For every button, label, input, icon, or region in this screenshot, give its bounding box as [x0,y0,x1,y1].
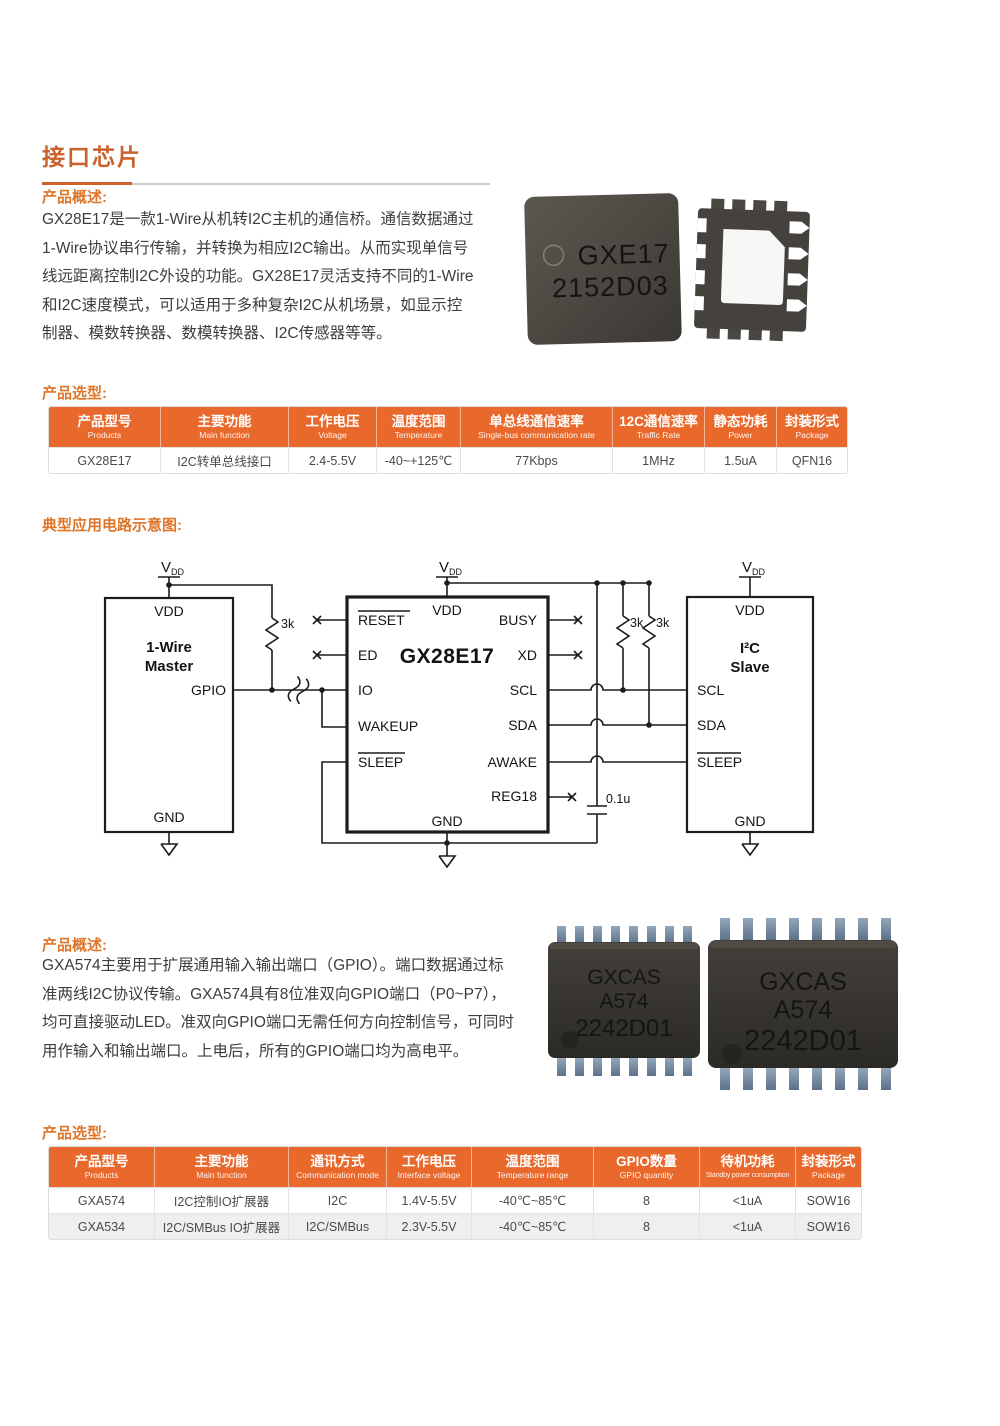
no-connect-ed [313,651,347,659]
table-header-row: 产品型号Products 主要功能Main function 工作电压Volta… [49,407,847,447]
chip-marking-line1: GXCAS [587,966,661,989]
overview-label-1: 产品概述: [42,186,107,207]
pin-scl: SCL [697,682,724,698]
table-cell: I2C/SMBus IO扩展器 [155,1213,289,1239]
table-cell: 8 [594,1187,700,1213]
header-cell: 封装形式Package [777,407,847,447]
block-1wire-master [105,598,233,832]
pin-io: IO [358,682,373,698]
resistor-value: 3k [281,617,295,631]
header-cell: 产品型号Products [49,1147,155,1187]
no-connect-reset [313,616,347,624]
header-cell: 主要功能Main function [161,407,289,447]
selection-label-2: 产品选型: [42,1122,107,1143]
pin-sleep: SLEEP [697,754,742,770]
pin-sleep: SLEEP [358,754,403,770]
capacitor [587,583,607,843]
header-cell: 单总线通信速率Single-bus communication rate [461,407,613,447]
pin1-indicator [722,1044,742,1064]
pin-reg18: REG18 [491,788,537,804]
table-cell: 1MHz [613,447,705,473]
header-cell: 通讯方式Communication mode [289,1147,387,1187]
header-cell: 静态功耗Power [705,407,777,447]
chip-marking-line3: 2242D01 [744,1025,862,1057]
table-row: GXA574 I2C控制IO扩展器 I2C 1.4V-5.5V -40℃~85℃… [49,1187,861,1213]
table-cell: <1uA [700,1213,796,1239]
overview-text-1: GX28E17是一款1-Wire从机转I2C主机的通信桥。通信数据通过 1-Wi… [42,206,522,349]
pin-vdd: VDD [432,602,462,618]
chip-marking-line3: 2242D01 [575,1015,672,1042]
pin-gpio: GPIO [191,682,226,698]
page-title: 接口芯片 [42,138,142,172]
table-header-row: 产品型号Products 主要功能Main function 通讯方式Commu… [49,1147,861,1187]
table-cell: -40℃~85℃ [472,1213,594,1239]
application-circuit-diagram: VDD VDD VDD VDD 1-Wire Master GPIO GND V… [0,540,1000,876]
pin-ed: ED [358,647,377,663]
resistor-scl-pullup [617,616,629,648]
resistor-sda-pullup [643,616,655,648]
wire-awake-sleep [548,756,687,762]
block-title: 1-Wire [146,639,192,656]
header-cell: 12C通信速率Traffic Rate [613,407,705,447]
table-cell: I2C [289,1187,387,1213]
pin-vdd: VDD [735,602,765,618]
chip-photo-qfn-bottom [684,196,820,344]
table-cell: 2.3V-5.5V [387,1213,472,1239]
pin-gnd: GND [734,813,765,829]
gnd-symbol [161,832,177,855]
vdd-supply-label: VDD [742,559,766,577]
pin-busy: BUSY [499,612,538,628]
table-cell: I2C转单总线接口 [161,447,289,473]
no-connect-busy [548,616,582,624]
pin-xd: XD [518,647,537,663]
no-connect-xd [548,651,582,659]
block-i2c-slave [687,597,813,832]
table-cell: <1uA [700,1187,796,1213]
no-connect-reg18 [548,793,576,801]
table-cell: 1.4V-5.5V [387,1187,472,1213]
chip-marking-line1: GXCAS [759,968,847,996]
chip-marking-line1: GXE17 [577,238,670,270]
block-title: Slave [730,659,769,676]
block-title: GX28E17 [400,645,495,668]
title-underline-rule [132,183,490,185]
header-cell: 工作电压Voltage [289,407,377,447]
table-cell: GXA574 [49,1187,155,1213]
table-cell: SOW16 [796,1187,861,1213]
table-cell: -40~+125℃ [377,447,461,473]
pin-sda: SDA [697,717,726,733]
header-cell: GPIO数量GPIO quantity [594,1147,700,1187]
circuit-label: 典型应用电路示意图: [42,514,182,535]
table-cell: 2.4-5.5V [289,447,377,473]
header-cell: 封装形式Package [796,1147,861,1187]
gnd-symbol [742,832,758,855]
product-table-1: 产品型号Products 主要功能Main function 工作电压Volta… [48,406,848,474]
table-cell: 77Kbps [461,447,613,473]
pin-sda: SDA [508,717,537,733]
header-cell: 温度范围Temperature [377,407,461,447]
chip-marking-line2: A574 [774,996,832,1024]
block-title: I²C [740,640,760,657]
chip-marking-line2: A574 [599,990,648,1013]
pin-gnd: GND [431,813,462,829]
table-cell: 8 [594,1213,700,1239]
gnd-symbol [439,832,455,867]
pin-vdd: VDD [154,603,184,619]
thermal-pad [721,229,786,305]
table-cell: SOW16 [796,1213,861,1239]
pin-gnd: GND [153,809,184,825]
pin-scl: SCL [510,682,537,698]
chip-photo-soic-small: GXCAS A574 2242D01 [540,922,708,1080]
vdd-supply-label: VDD [439,559,463,577]
resistor-1wire-pullup [266,618,278,650]
table-cell: QFN16 [777,447,847,473]
chip-photo-soic-large: GXCAS A574 2242D01 [700,914,906,1094]
header-cell: 温度范围Temperature range [472,1147,594,1187]
pin-reset: RESET [358,612,405,628]
capacitor-value: 0.1u [606,792,630,806]
table-row: GX28E17 I2C转单总线接口 2.4-5.5V -40~+125℃ 77K… [49,447,847,473]
pin-awake: AWAKE [487,754,537,770]
chip-photo-qfn-top: GXE17 2152D03 [520,190,688,350]
pins-bottom [720,1068,891,1090]
table-cell: GXA534 [49,1213,155,1239]
block-title: Master [145,658,194,675]
table-cell: 1.5uA [705,447,777,473]
table-row: GXA534 I2C/SMBus IO扩展器 I2C/SMBus 2.3V-5.… [49,1213,861,1239]
table-cell: -40℃~85℃ [472,1187,594,1213]
vdd-supply-label: VDD [161,559,185,577]
table-cell: I2C控制IO扩展器 [155,1187,289,1213]
title-underline-accent [42,182,132,185]
table-cell: GX28E17 [49,447,161,473]
table-cell: I2C/SMBus [289,1213,387,1239]
product-table-2: 产品型号Products 主要功能Main function 通讯方式Commu… [48,1146,862,1240]
wire-scl [548,684,687,690]
datasheet-page: 接口芯片 产品概述: GX28E17是一款1-Wire从机转I2C主机的通信桥。… [0,0,1000,1426]
chip-marking-line2: 2152D03 [552,270,669,303]
pins-top [557,926,692,944]
header-cell: 产品型号Products [49,407,161,447]
overview-text-2: GXA574主要用于扩展通用输入输出端口（GPIO）。端口数据通过标 准两线I2… [42,952,547,1066]
pins-bottom [557,1058,692,1076]
pin1-indicator [561,1031,579,1049]
header-cell: 待机功耗Standby power consumption [700,1147,796,1187]
pin-wakeup: WAKEUP [358,718,418,734]
selection-label-1: 产品选型: [42,382,107,403]
wire-sda [548,719,687,725]
header-cell: 主要功能Main function [155,1147,289,1187]
pins-top [720,918,891,940]
resistor-value: 3k [656,616,670,630]
header-cell: 工作电压Interface voltage [387,1147,472,1187]
